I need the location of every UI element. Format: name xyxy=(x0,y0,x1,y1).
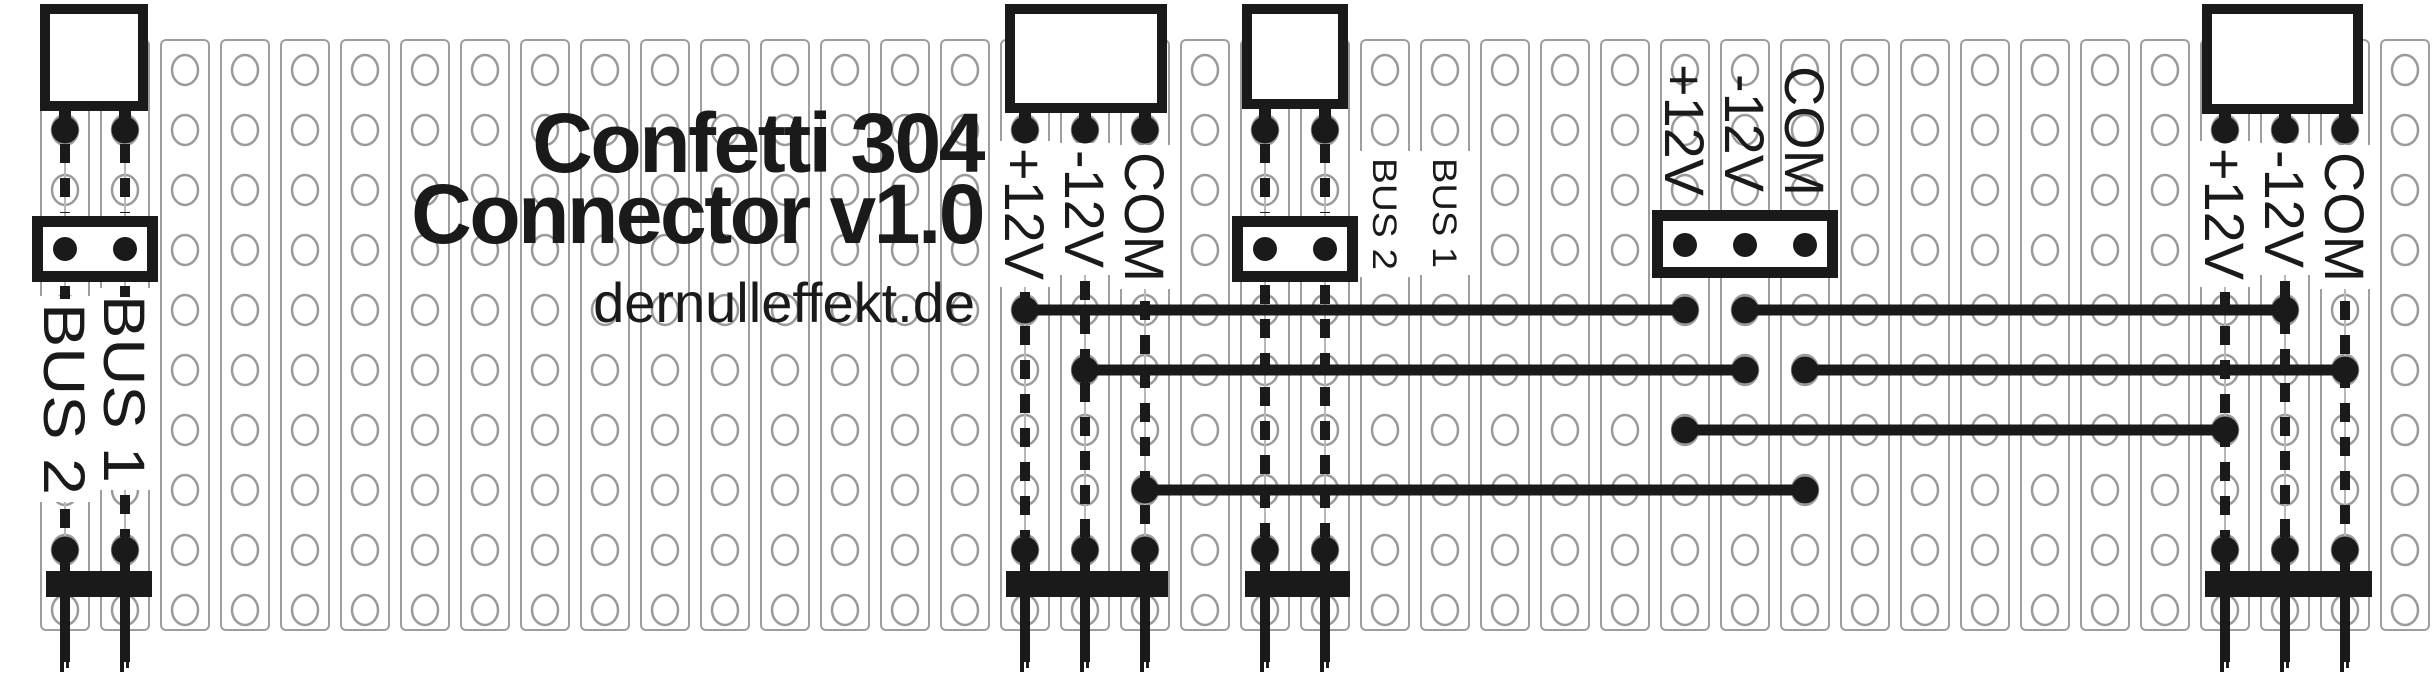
label-bus1-left: BUS 1 xyxy=(91,295,156,483)
bottom-pad-dot xyxy=(1132,537,1159,564)
junction-dot xyxy=(1672,417,1699,444)
label-plus12v-header: +12V xyxy=(1653,64,1716,197)
junction-dot xyxy=(1672,297,1699,324)
bottom-pin xyxy=(2340,552,2350,662)
label-com-right: COM xyxy=(2313,152,2376,282)
bottom-pad-dot xyxy=(2272,537,2299,564)
bottom-pin xyxy=(1080,552,1090,662)
solder-bar xyxy=(1245,571,1350,597)
wire-plus12v-a xyxy=(1012,297,1699,324)
junction-dot xyxy=(1072,357,1099,384)
label-minus12v-middle: -12V xyxy=(1053,150,1116,269)
junction-dot xyxy=(2272,297,2299,324)
header-pin-dot xyxy=(1253,237,1277,261)
bottom-pin xyxy=(1140,552,1150,662)
bottom-pad-dot xyxy=(52,537,79,564)
junction-dot xyxy=(1792,477,1819,504)
connector-pin-dot xyxy=(112,117,139,144)
junction-dot xyxy=(1732,297,1759,324)
bottom-pad-dot xyxy=(112,537,139,564)
header-bus-left xyxy=(38,222,153,277)
connector-pin-dot xyxy=(1012,117,1039,144)
board-title-line2: Connector v1.0 xyxy=(411,167,983,261)
stripboard-canvas: BUS 1BUS 2+12V-12VCOMBUS 1BUS 2+12V-12VC… xyxy=(0,0,2432,680)
connector-pin-dot xyxy=(1252,117,1279,144)
solder-bar xyxy=(2205,571,2372,597)
header-pin-dot xyxy=(1733,233,1757,257)
connector-pin-dot xyxy=(1312,117,1339,144)
website-text: dernulleffekt.de xyxy=(593,271,975,334)
header-pin-dot xyxy=(1673,233,1697,257)
junction-dot xyxy=(2332,357,2359,384)
bottom-pad-dot xyxy=(1012,537,1039,564)
header-power xyxy=(1658,216,1833,273)
connector-bus-middle xyxy=(1247,9,1343,144)
connector-pin-dot xyxy=(2272,117,2299,144)
bottom-pin xyxy=(1320,552,1330,662)
bottom-pad-dot xyxy=(1252,537,1279,564)
label-bus2-left: BUS 2 xyxy=(31,303,96,495)
strip-columns xyxy=(41,40,2429,630)
junction-dot xyxy=(1132,477,1159,504)
bottom-pad-dot xyxy=(1312,537,1339,564)
header-pin-dot xyxy=(1793,233,1817,257)
junction-dot xyxy=(2212,417,2239,444)
header-pin-dot xyxy=(1313,237,1337,261)
header-pin-dot xyxy=(53,237,77,261)
label-com-header: COM xyxy=(1773,66,1836,196)
bottom-pin xyxy=(1260,552,1270,662)
label-minus12v-header: -12V xyxy=(1713,74,1776,193)
solder-bar xyxy=(46,571,152,597)
label-plus12v-middle: +12V xyxy=(993,148,1056,281)
bottom-pad-dot xyxy=(2212,537,2239,564)
connector-pin-dot xyxy=(2212,117,2239,144)
bottom-pin xyxy=(2280,552,2290,662)
connector-power-middle xyxy=(1010,9,1162,144)
junction-dot xyxy=(1792,357,1819,384)
wire-com-a xyxy=(1132,477,1819,504)
connector-power-right xyxy=(2207,9,2359,144)
label-bus1-middle: BUS 1 xyxy=(1425,158,1463,268)
connector-pin-dot xyxy=(2332,117,2359,144)
bottom-pin xyxy=(2220,552,2230,662)
junction-dot xyxy=(1732,357,1759,384)
bottom-pin xyxy=(1020,552,1030,662)
label-com-middle: COM xyxy=(1113,152,1176,282)
wire-minus12v-a xyxy=(1072,357,1759,384)
bottom-pad-dot xyxy=(1072,537,1099,564)
connector-pin-dot xyxy=(1132,117,1159,144)
stripboard-diagram: BUS 1BUS 2+12V-12VCOMBUS 1BUS 2+12V-12VC… xyxy=(0,0,2432,680)
label-bus2-middle: BUS 2 xyxy=(1365,158,1403,270)
connector-bus-left xyxy=(45,9,143,144)
connector-pin-dot xyxy=(1072,117,1099,144)
label-plus12v-right: +12V xyxy=(2193,148,2256,281)
bottom-pin xyxy=(120,552,130,662)
bottom-pin xyxy=(60,552,70,662)
header-bus-middle xyxy=(1238,222,1353,277)
solder-bar xyxy=(1006,571,1168,597)
junction-dot xyxy=(1012,297,1039,324)
bottom-pad-dot xyxy=(2332,537,2359,564)
header-pin-dot xyxy=(113,237,137,261)
label-minus12v-right: -12V xyxy=(2253,150,2316,269)
connector-pin-dot xyxy=(52,117,79,144)
